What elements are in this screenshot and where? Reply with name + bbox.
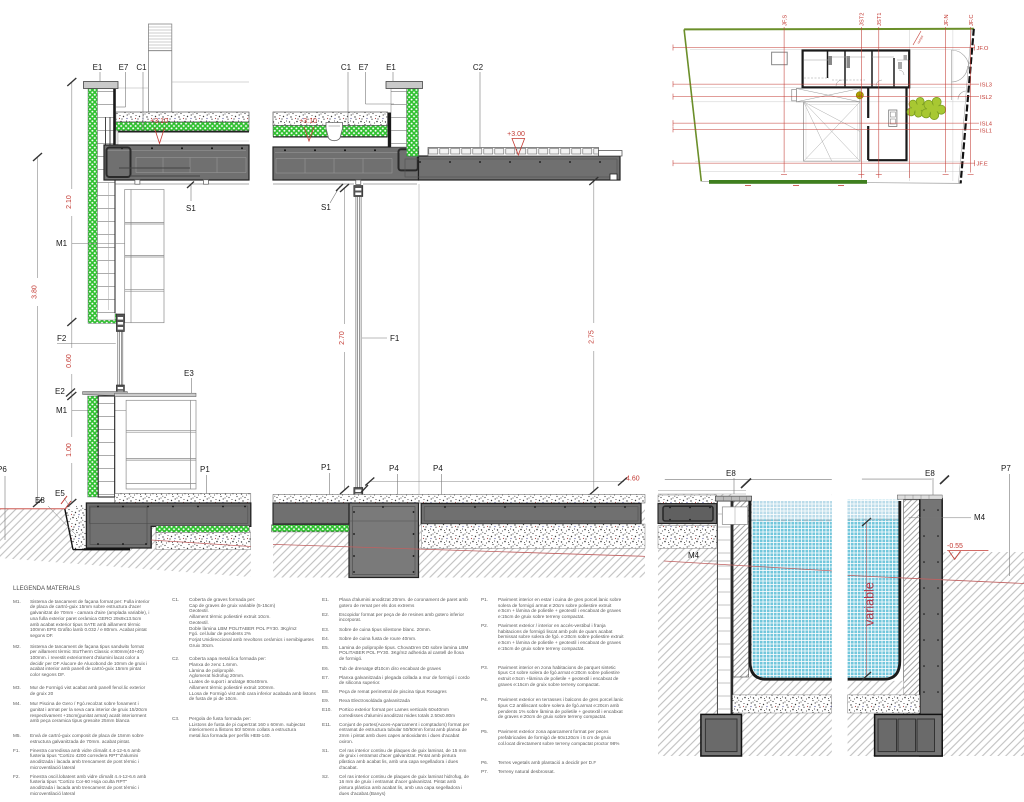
svg-text:S1: S1 bbox=[321, 203, 331, 212]
svg-text:4.60: 4.60 bbox=[626, 476, 640, 483]
svg-text:E5: E5 bbox=[55, 489, 65, 498]
svg-text:ISL3: ISL3 bbox=[980, 83, 992, 89]
svg-text:-0.55: -0.55 bbox=[947, 543, 963, 550]
svg-text:JF.O: JF.O bbox=[977, 46, 989, 52]
svg-text:P4: P4 bbox=[433, 464, 443, 473]
svg-text:2.75: 2.75 bbox=[588, 330, 595, 344]
svg-text:F1: F1 bbox=[390, 334, 400, 343]
svg-text:M1: M1 bbox=[56, 406, 68, 415]
svg-text:M1: M1 bbox=[56, 239, 68, 248]
svg-text:E7: E7 bbox=[119, 63, 129, 72]
svg-text:1.00: 1.00 bbox=[66, 443, 73, 457]
svg-text:E8: E8 bbox=[726, 469, 736, 478]
svg-text:M4: M4 bbox=[974, 513, 986, 522]
svg-text:3.80: 3.80 bbox=[32, 285, 39, 299]
svg-text:S1: S1 bbox=[186, 204, 196, 213]
svg-text:P7: P7 bbox=[1001, 464, 1011, 473]
svg-text:C1: C1 bbox=[341, 63, 352, 72]
svg-text:P4: P4 bbox=[389, 464, 399, 473]
svg-text:C2: C2 bbox=[473, 63, 484, 72]
svg-text:JF.S: JF.S bbox=[783, 15, 789, 26]
svg-text:JST1: JST1 bbox=[877, 12, 883, 26]
svg-text:E8: E8 bbox=[35, 496, 45, 505]
svg-text:E3: E3 bbox=[184, 369, 194, 378]
svg-text:P1: P1 bbox=[200, 465, 210, 474]
svg-text:ISL1: ISL1 bbox=[980, 128, 992, 134]
svg-text:E8: E8 bbox=[925, 469, 935, 478]
svg-text:P6: P6 bbox=[0, 465, 7, 474]
svg-text:JF.C: JF.C bbox=[969, 14, 975, 26]
svg-text:+3.10: +3.10 bbox=[150, 118, 168, 125]
svg-text:JST2: JST2 bbox=[860, 12, 866, 26]
svg-text:ISL4: ISL4 bbox=[980, 122, 993, 128]
svg-text:P1: P1 bbox=[321, 463, 331, 472]
svg-text:C1: C1 bbox=[136, 63, 147, 72]
svg-text:0.60: 0.60 bbox=[66, 354, 73, 368]
svg-text:F2: F2 bbox=[57, 334, 67, 343]
svg-text:M4: M4 bbox=[688, 551, 700, 560]
svg-text:E7: E7 bbox=[359, 63, 369, 72]
svg-text:JF.E: JF.E bbox=[977, 162, 988, 168]
svg-text:E1: E1 bbox=[386, 63, 396, 72]
svg-text:2.70: 2.70 bbox=[339, 331, 346, 345]
svg-text:ISL2: ISL2 bbox=[980, 95, 992, 101]
svg-text:JF.N: JF.N bbox=[944, 14, 950, 26]
svg-text:E1: E1 bbox=[93, 63, 103, 72]
svg-text:variable: variable bbox=[863, 582, 877, 626]
svg-text:+3.10: +3.10 bbox=[299, 118, 317, 125]
svg-text:rampa: rampa bbox=[916, 34, 924, 44]
svg-text:+3.00: +3.00 bbox=[507, 131, 525, 138]
svg-text:2.10: 2.10 bbox=[66, 195, 73, 209]
svg-text:E2: E2 bbox=[55, 387, 65, 396]
